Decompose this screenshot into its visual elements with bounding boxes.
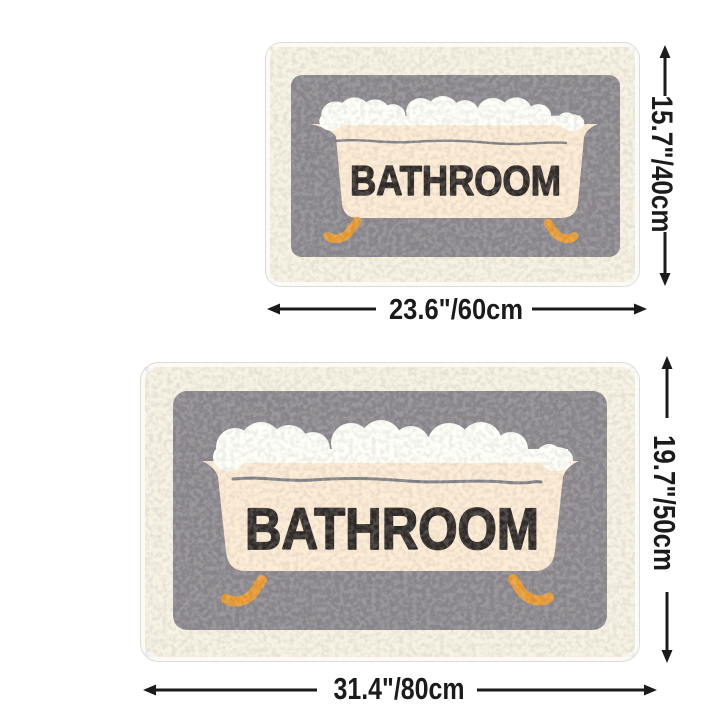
svg-text:15.7"/40cm: 15.7"/40cm: [645, 96, 678, 233]
svg-text:19.7"/50cm: 19.7"/50cm: [647, 435, 682, 571]
svg-text:31.4"/80cm: 31.4"/80cm: [334, 671, 465, 706]
svg-text:23.6"/60cm: 23.6"/60cm: [389, 294, 523, 326]
